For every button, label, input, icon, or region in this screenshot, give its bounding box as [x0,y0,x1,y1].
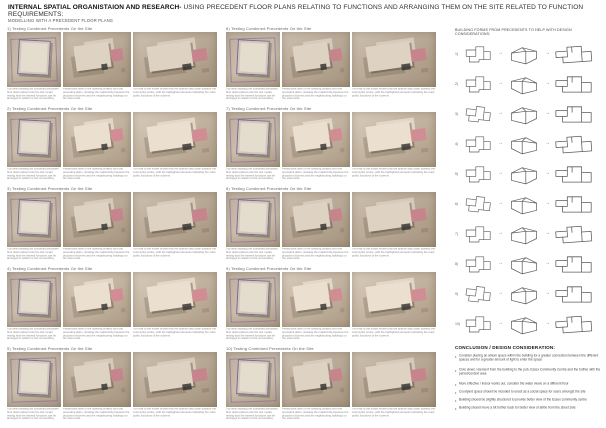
model-photo [133,112,217,167]
photo-row [7,112,217,167]
model-photo [7,32,61,87]
model-photo [133,272,217,327]
section-label: 8) Testing Combined Precedents On the Si… [226,186,437,191]
massing-sketch [506,102,542,126]
photo-caption: Top view showing the combined precedent … [7,248,61,261]
photo-caption: The rear of the model shows how the spac… [352,408,436,421]
row-number: 8) [455,262,460,266]
row-number: 9) [455,292,460,296]
model-photo [226,192,280,247]
model-photo [7,352,61,407]
photo-caption: The rear of the model shows how the spac… [352,328,436,341]
model-test-section: 1) Testing Combined Precedents On the Si… [7,26,217,101]
arrow-icon: → [545,111,550,116]
model-test-section: 9) Testing Combined Precedents On the Si… [226,266,437,341]
refined-massing-sketch [553,191,595,216]
design-consideration-item: Consider placing an atrium space within … [455,354,602,366]
refined-massing-sketch [552,220,596,248]
photo-row [7,192,217,247]
building-forms-panel: BUILDING FORMS FROM PRECEDENTS TO HELP W… [455,28,602,414]
row-number: 1) [455,52,460,56]
refined-massing-sketch [553,71,595,96]
model-photo [352,32,436,87]
photo-caption: Perspective view of the massing created … [282,408,350,421]
plan-form-sketch [463,222,495,246]
row-number: 3) [455,112,460,116]
refined-massing-sketch [552,130,596,158]
plan-form-sketch [462,280,496,307]
plan-form-sketch [462,100,496,127]
form-evolution-row: 5) → → [455,160,602,187]
arrow-icon: → [498,81,503,86]
caption-row: Top view showing the combined precedent … [7,408,217,421]
arrow-icon: → [545,261,550,266]
plan-form-sketch [463,42,495,66]
design-consideration-list: Consider placing an atrium space within … [455,354,602,412]
caption-row: Top view showing the combined precedent … [226,328,437,341]
photo-caption: Perspective view of the massing created … [63,248,131,261]
row-number: 4) [455,142,460,146]
arrow-icon: → [545,51,550,56]
plan-form-sketch [463,162,495,186]
photo-row [226,272,437,327]
massing-sketch [506,162,542,186]
design-consideration-item: Courtyard space should be included to en… [455,390,602,396]
model-photo [133,192,217,247]
model-photo [282,192,350,247]
photo-caption: Top view showing the combined precedent … [226,408,280,421]
model-photo [282,32,350,87]
model-photo [63,112,131,167]
model-photo [7,112,61,167]
model-test-section: 10) Testing Combined Precedents On the S… [226,346,437,421]
model-photo [226,112,280,167]
refined-massing-sketch [553,251,595,276]
model-test-section: 6) Testing Combined Precedents On the Si… [226,26,437,101]
photo-caption: Perspective view of the massing created … [282,248,350,261]
row-number: 2) [455,82,460,86]
form-evolution-row: 6) → → [455,190,602,217]
model-photo [133,352,217,407]
section-label: 10) Testing Combined Precedents On the S… [226,346,437,351]
model-test-section: 3) Testing Combined Precedents On the Si… [7,186,217,261]
photo-row [7,352,217,407]
photo-caption: Top view showing the combined precedent … [226,328,280,341]
model-photo [282,112,350,167]
photo-caption: The rear of the model shows how the spac… [133,168,217,181]
design-consideration-item: Building should move a bit further back … [455,406,602,412]
massing-sketch [506,282,542,306]
conclusion-title: CONCLUSION / DESIGN CONSIDERATION: [455,345,602,350]
arrow-icon: → [498,231,503,236]
board-subtitle: MODELLING WITH A PRECEDENT FLOOR PLANS [8,18,113,23]
form-evolution-row: 10) → → [455,310,602,337]
arrow-icon: → [498,321,503,326]
arrow-icon: → [498,171,503,176]
model-test-section: 2) Testing Combined Precedents On the Si… [7,106,217,181]
massing-sketch [506,42,542,66]
design-consideration-item: Civic views / element from the building … [455,368,602,380]
model-photo [7,272,61,327]
board-title-bold: INTERNAL SPATIAL ORGANISTAION AND RESEAR… [8,4,182,11]
caption-row: Top view showing the combined precedent … [226,88,437,101]
section-label: 3) Testing Combined Precedents On the Si… [7,186,217,191]
form-evolution-row: 1) → → [455,40,602,67]
caption-row: Top view showing the combined precedent … [7,88,217,101]
caption-row: Top view showing the combined precedent … [7,248,217,261]
photo-caption: Top view showing the combined precedent … [7,168,61,181]
middle-photo-column: 6) Testing Combined Precedents On the Si… [226,26,437,426]
design-consideration-item: Building should be slightly structured t… [455,398,602,404]
model-photo [63,352,131,407]
form-evolution-row: 7) → → [455,220,602,247]
row-number: 5) [455,172,460,176]
arrow-icon: → [545,141,550,146]
photo-caption: Perspective view of the massing created … [63,328,131,341]
plan-form-sketch [462,190,496,217]
arrow-icon: → [498,141,503,146]
arrow-icon: → [498,201,503,206]
plan-form-sketch [463,252,495,276]
refined-massing-sketch [552,40,596,68]
section-label: 7) Testing Combined Precedents On the Si… [226,106,437,111]
photo-caption: The rear of the model shows how the spac… [133,248,217,261]
photo-caption: Top view showing the combined precedent … [226,168,280,181]
photo-row [226,32,437,87]
refined-massing-sketch [552,310,596,338]
plan-form-sketch [463,312,495,336]
row-number: 6) [455,202,460,206]
arrow-icon: → [545,201,550,206]
refined-massing-sketch [553,101,595,126]
massing-sketch [506,72,542,96]
arrow-icon: → [545,291,550,296]
row-number: 7) [455,232,460,236]
arrow-icon: → [498,51,503,56]
massing-sketch [506,252,542,276]
model-photo [282,272,350,327]
model-test-section: 5) Testing Combined Precedents On the Si… [7,346,217,421]
photo-row [7,32,217,87]
photo-caption: Top view showing the combined precedent … [226,248,280,261]
plan-form-sketch [463,132,495,156]
form-evolution-row: 4) → → [455,130,602,157]
arrow-icon: → [498,261,503,266]
photo-row [7,272,217,327]
model-photo [63,192,131,247]
caption-row: Top view showing the combined precedent … [7,328,217,341]
arrow-icon: → [545,171,550,176]
refined-massing-sketch [553,161,595,186]
section-label: 9) Testing Combined Precedents On the Si… [226,266,437,271]
section-label: 2) Testing Combined Precedents On the Si… [7,106,217,111]
design-consideration-item: More effective / indoor works out, consi… [455,382,602,388]
photo-caption: Top view showing the combined precedent … [226,88,280,101]
massing-sketch [506,192,542,216]
caption-row: Top view showing the combined precedent … [7,168,217,181]
form-evolution-row: 2) → → [455,70,602,97]
model-photo [352,352,436,407]
arrow-icon: → [498,111,503,116]
caption-row: Top view showing the combined precedent … [226,408,437,421]
form-evolution-row: 8) → → [455,250,602,277]
caption-row: Top view showing the combined precedent … [226,168,437,181]
photo-caption: Perspective view of the massing created … [63,408,131,421]
model-photo [133,32,217,87]
photo-caption: Perspective view of the massing created … [282,328,350,341]
form-evolution-row: 9) → → [455,280,602,307]
section-label: 4) Testing Combined Precedents On the Si… [7,266,217,271]
arrow-icon: → [498,291,503,296]
model-photo [352,112,436,167]
arrow-icon: → [545,81,550,86]
photo-caption: Perspective view of the massing created … [63,88,131,101]
massing-sketch [506,222,542,246]
photo-caption: The rear of the model shows how the spac… [133,328,217,341]
presentation-board: INTERNAL SPATIAL ORGANISTAION AND RESEAR… [0,0,606,428]
massing-sketch [506,312,542,336]
board-title: INTERNAL SPATIAL ORGANISTAION AND RESEAR… [8,4,600,19]
model-photo [226,272,280,327]
photo-caption: Top view showing the combined precedent … [7,328,61,341]
massing-sketch [506,132,542,156]
photo-caption: The rear of the model shows how the spac… [133,408,217,421]
model-photo [7,192,61,247]
model-test-section: 4) Testing Combined Precedents On the Si… [7,266,217,341]
photo-caption: Top view showing the combined precedent … [7,88,61,101]
photo-caption: The rear of the model shows how the spac… [352,248,436,261]
plan-form-sketch [463,72,495,96]
photo-caption: Perspective view of the massing created … [63,168,131,181]
photo-caption: Top view showing the combined precedent … [7,408,61,421]
model-photo [226,352,280,407]
model-photo [352,272,436,327]
left-photo-column: 1) Testing Combined Precedents On the Si… [7,26,217,426]
photo-row [226,112,437,167]
arrow-icon: → [545,321,550,326]
refined-massing-sketch [553,281,595,306]
model-photo [63,32,131,87]
section-label: 5) Testing Combined Precedents On the Si… [7,346,217,351]
photo-caption: The rear of the model shows how the spac… [133,88,217,101]
form-evolution-row: 3) → → [455,100,602,127]
form-evolution-rows: 1) → → 2) → [455,40,602,337]
model-photo [352,192,436,247]
building-forms-header: BUILDING FORMS FROM PRECEDENTS TO HELP W… [455,28,602,36]
photo-caption: The rear of the model shows how the spac… [352,88,436,101]
row-number: 10) [455,322,460,326]
photo-caption: The rear of the model shows how the spac… [352,168,436,181]
caption-row: Top view showing the combined precedent … [226,248,437,261]
model-photo [63,272,131,327]
photo-row [226,192,437,247]
photo-caption: Perspective view of the massing created … [282,168,350,181]
model-photo [282,352,350,407]
photo-row [226,352,437,407]
section-label: 1) Testing Combined Precedents On the Si… [7,26,217,31]
model-test-section: 8) Testing Combined Precedents On the Si… [226,186,437,261]
photo-caption: Perspective view of the massing created … [282,88,350,101]
section-label: 6) Testing Combined Precedents On the Si… [226,26,437,31]
model-test-section: 7) Testing Combined Precedents On the Si… [226,106,437,181]
model-photo [226,32,280,87]
arrow-icon: → [545,231,550,236]
